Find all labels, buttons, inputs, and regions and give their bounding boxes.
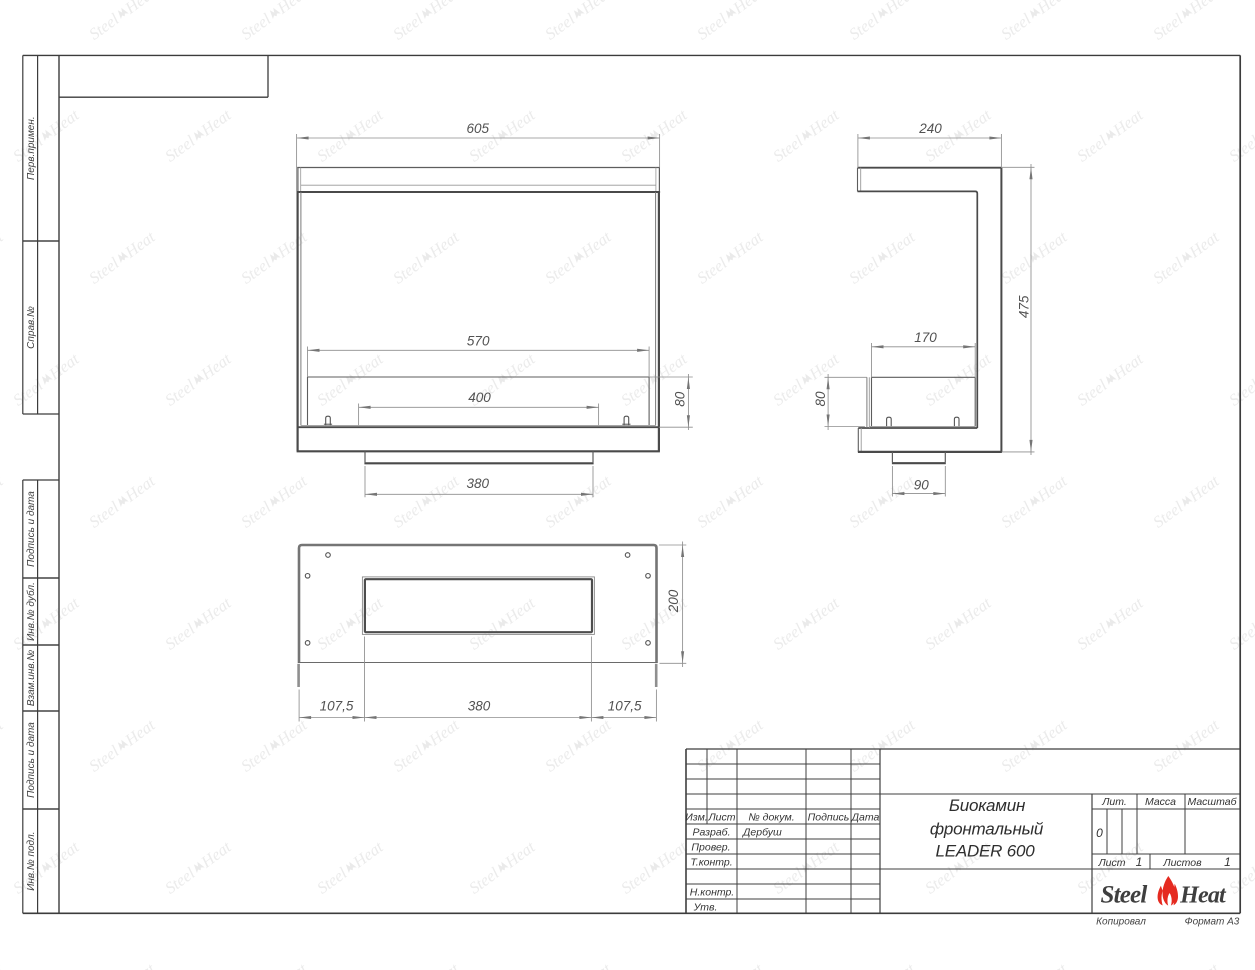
svg-text:Инв.№ подл.: Инв.№ подл. bbox=[26, 832, 37, 891]
svg-text:Провер.: Провер. bbox=[691, 842, 730, 854]
svg-text:Взам.инв.№: Взам.инв.№ bbox=[26, 650, 37, 706]
svg-text:107,5: 107,5 bbox=[608, 699, 642, 714]
svg-text:Справ.№: Справ.№ bbox=[26, 306, 37, 349]
svg-text:Т.контр.: Т.контр. bbox=[690, 857, 732, 869]
svg-text:Перв.примен.: Перв.примен. bbox=[26, 116, 37, 180]
svg-text:Н.контр.: Н.контр. bbox=[690, 887, 734, 899]
svg-text:Инв.№ дубл.: Инв.№ дубл. bbox=[25, 582, 37, 641]
svg-text:90: 90 bbox=[914, 478, 930, 493]
svg-text:Лист: Лист bbox=[1097, 857, 1125, 869]
svg-text:Дата: Дата bbox=[851, 812, 880, 824]
svg-text:Лит.: Лит. bbox=[1101, 796, 1127, 808]
svg-text:380: 380 bbox=[467, 476, 490, 491]
svg-text:Биокамин: Биокамин bbox=[949, 796, 1026, 815]
svg-text:№ докум.: № докум. bbox=[748, 812, 794, 824]
svg-text:Масштаб: Масштаб bbox=[1187, 796, 1237, 808]
svg-text:Разраб.: Разраб. bbox=[693, 827, 731, 839]
svg-text:Листов: Листов bbox=[1162, 857, 1202, 869]
svg-text:Steel: Steel bbox=[1101, 882, 1148, 909]
svg-text:Изм.: Изм. bbox=[685, 812, 707, 824]
svg-text:400: 400 bbox=[468, 390, 491, 405]
svg-text:Подпись и дата: Подпись и дата bbox=[26, 722, 37, 798]
svg-text:200: 200 bbox=[666, 589, 681, 613]
svg-text:1: 1 bbox=[1224, 855, 1231, 869]
svg-text:475: 475 bbox=[1016, 295, 1031, 318]
svg-text:Копировал: Копировал bbox=[1096, 917, 1146, 928]
svg-text:605: 605 bbox=[467, 121, 490, 136]
svg-text:Heat: Heat bbox=[1179, 883, 1227, 909]
svg-text:80: 80 bbox=[813, 391, 828, 407]
svg-text:фронтальный: фронтальный bbox=[930, 820, 1044, 839]
svg-text:170: 170 bbox=[914, 330, 937, 345]
svg-text:Масса: Масса bbox=[1145, 796, 1176, 808]
svg-text:Утв.: Утв. bbox=[693, 901, 718, 913]
svg-text:380: 380 bbox=[468, 699, 491, 714]
svg-text:1: 1 bbox=[1136, 855, 1143, 869]
svg-text:Лист: Лист bbox=[707, 812, 735, 824]
svg-text:Формат А3: Формат А3 bbox=[1185, 917, 1240, 928]
svg-text:Подпись: Подпись bbox=[808, 812, 850, 824]
svg-text:Подпись и дата: Подпись и дата bbox=[26, 491, 37, 567]
svg-text:240: 240 bbox=[918, 121, 942, 136]
svg-text:0: 0 bbox=[1096, 826, 1103, 840]
svg-text:Дербуш: Дербуш bbox=[742, 827, 782, 839]
svg-text:107,5: 107,5 bbox=[320, 699, 354, 714]
svg-text:80: 80 bbox=[673, 391, 688, 407]
svg-text:570: 570 bbox=[467, 334, 490, 349]
svg-text:LEADER 600: LEADER 600 bbox=[935, 842, 1035, 861]
